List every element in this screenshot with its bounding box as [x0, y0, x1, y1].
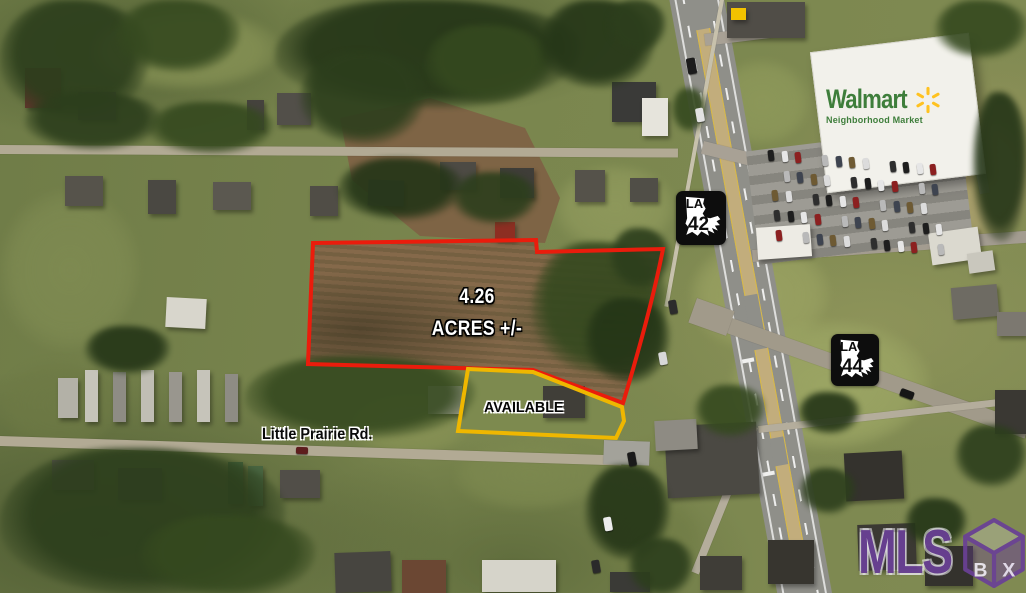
parked-car [889, 160, 896, 172]
walmart-spark-icon [914, 86, 942, 114]
building [113, 372, 126, 422]
car [296, 447, 308, 454]
acreage-value: 4.26 [394, 281, 560, 313]
route-shield-la-42: LA 42 [676, 191, 726, 245]
walmart-sign-row: Walmart [826, 84, 942, 115]
parked-car [771, 190, 778, 202]
tree-cluster [798, 392, 860, 434]
parked-car [916, 163, 923, 175]
building [630, 178, 658, 202]
shield-route-number: 42 [681, 215, 716, 234]
parked-car [868, 218, 875, 230]
building [85, 370, 98, 422]
parked-car [800, 212, 807, 224]
parked-car [902, 162, 909, 174]
building [334, 551, 391, 593]
parked-car [773, 210, 780, 222]
tree-cluster [608, 0, 666, 52]
tree-cluster [25, 92, 160, 150]
tree-cluster [300, 52, 425, 144]
parked-car [823, 174, 830, 186]
building [225, 374, 238, 422]
tree-cluster [338, 158, 463, 220]
parked-car [893, 200, 900, 212]
building [495, 222, 515, 240]
building [482, 560, 556, 592]
tree-cluster [585, 298, 670, 383]
parked-car [883, 239, 890, 251]
parked-car [775, 230, 782, 242]
building [197, 370, 210, 422]
tree-cluster [140, 515, 315, 593]
tree-cluster [935, 0, 1026, 58]
parked-car [854, 217, 861, 229]
parked-car [910, 242, 917, 254]
parked-car [897, 240, 904, 252]
parked-car [881, 219, 888, 231]
building [700, 556, 742, 590]
mls-cube-letter-b: B [973, 560, 987, 582]
parked-car [785, 191, 792, 203]
building [997, 312, 1026, 336]
building [951, 284, 1000, 320]
parked-car [850, 177, 857, 189]
mls-cube-icon: B X [961, 518, 1026, 588]
parked-car [935, 224, 942, 236]
street-name-label: Little Prairie Rd. [262, 426, 372, 444]
building [280, 470, 320, 498]
parked-car [906, 202, 913, 214]
parked-car [814, 213, 821, 225]
building [165, 297, 207, 329]
parked-car [781, 151, 788, 163]
aerial-photo: 4.26 ACRES +/- AVAILABLE Little Prairie … [0, 0, 1026, 593]
parked-car [843, 236, 850, 248]
parked-car [835, 156, 842, 168]
mls-watermark: MLS B X [858, 518, 1026, 588]
building [642, 98, 668, 136]
tree-cluster [695, 385, 765, 437]
parked-car [852, 197, 859, 209]
tree-cluster [610, 228, 670, 288]
parked-car [877, 179, 884, 191]
mls-cube-letter-x: X [1002, 560, 1015, 582]
parked-car [783, 171, 790, 183]
walmart-wordmark: Walmart [826, 84, 907, 115]
tree-cluster [115, 0, 240, 72]
route-shield-la-44: LA 44 [831, 334, 879, 386]
tree-cluster [425, 25, 550, 103]
parked-car [931, 184, 938, 196]
building [58, 378, 78, 418]
parked-car [816, 233, 823, 245]
parked-car [821, 154, 828, 166]
building [575, 170, 605, 202]
parked-car [839, 196, 846, 208]
parked-car [918, 183, 925, 195]
tree-cluster [972, 92, 1026, 242]
parked-car [802, 232, 809, 244]
parked-car [908, 222, 915, 234]
parked-car [929, 164, 936, 176]
parked-car [848, 157, 855, 169]
building [213, 182, 251, 210]
shield-state-label: LA [678, 197, 711, 210]
tree-cluster [800, 468, 856, 514]
parked-car [937, 244, 944, 256]
mls-watermark-text: MLS [858, 522, 952, 584]
parked-car [841, 216, 848, 228]
parked-car [796, 172, 803, 184]
parked-car [829, 234, 836, 246]
acreage-label: 4.26 ACRES +/- [394, 281, 560, 344]
shield-route-number: 44 [836, 357, 870, 376]
tree-cluster [148, 102, 273, 154]
acreage-units: ACRES +/- [394, 313, 560, 345]
parked-car [812, 193, 819, 205]
parked-car [862, 158, 869, 170]
shield-state-label: LA [833, 340, 865, 353]
building [148, 180, 176, 214]
tree-cluster [452, 172, 537, 224]
parked-car [920, 203, 927, 215]
parked-car [767, 150, 774, 162]
building [768, 540, 814, 584]
parked-car [794, 152, 801, 164]
parked-car [922, 223, 929, 235]
tree-cluster [85, 326, 170, 374]
parked-car [864, 178, 871, 190]
parked-car [879, 199, 886, 211]
building [310, 186, 338, 216]
building [65, 176, 103, 206]
parked-car [870, 238, 877, 250]
parked-car [810, 173, 817, 185]
building [967, 250, 996, 273]
available-label: AVAILABLE [484, 399, 563, 416]
parked-car [891, 180, 898, 192]
building [731, 8, 746, 20]
walmart-store-sign: Walmart Neighborhood Market [826, 84, 942, 125]
walmart-subtitle: Neighborhood Market [826, 115, 942, 125]
building [402, 560, 446, 593]
parked-car [787, 211, 794, 223]
building [169, 372, 182, 422]
tree-cluster [628, 538, 693, 593]
highway-intersection-gap [769, 436, 788, 466]
building [654, 419, 698, 451]
tree-cluster [955, 425, 1026, 487]
building [141, 370, 154, 422]
parked-car [825, 194, 832, 206]
